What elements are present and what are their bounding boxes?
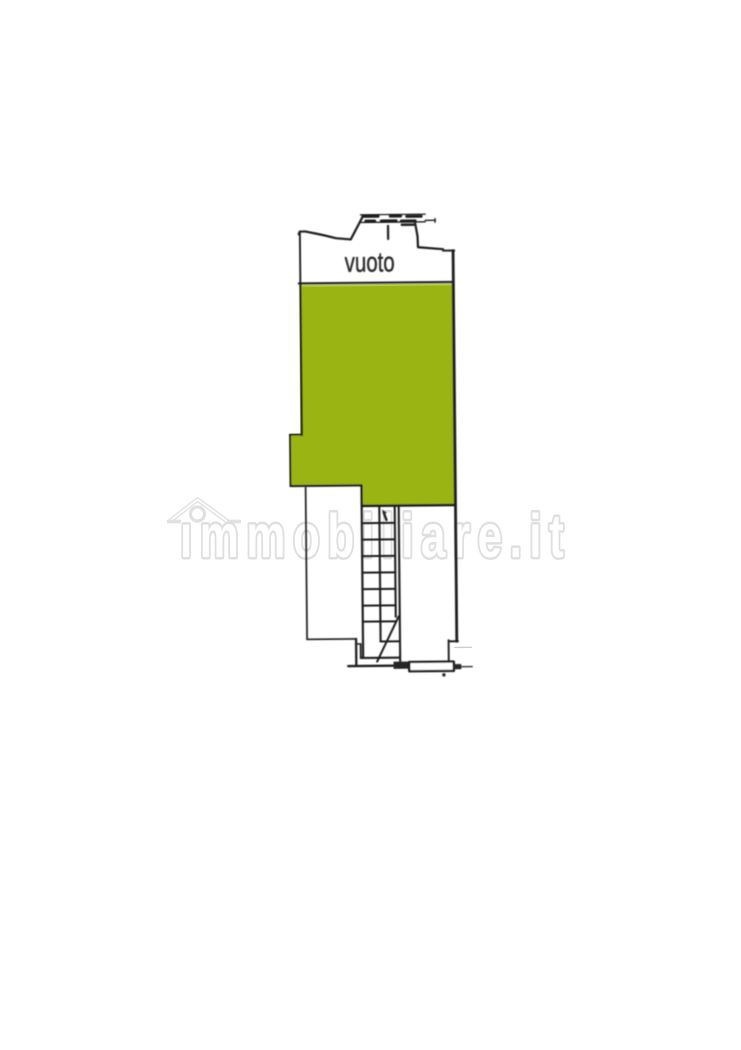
- svg-text:ımmobiliare.it: ımmobiliare.it: [180, 503, 571, 571]
- svg-text:vuoto: vuoto: [345, 246, 395, 277]
